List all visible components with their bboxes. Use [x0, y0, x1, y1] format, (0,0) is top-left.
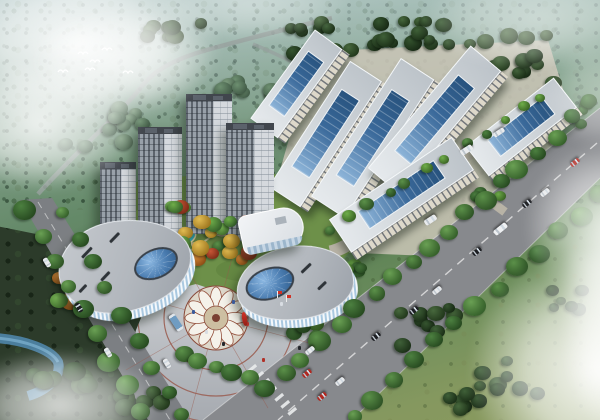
birds-overlay: [0, 0, 600, 420]
bird-icon: [85, 68, 95, 70]
bird-icon: [123, 71, 133, 73]
bird-icon: [78, 52, 88, 54]
aerial-rendering-canvas: [0, 0, 600, 420]
bird-icon: [102, 48, 112, 50]
bird-icon: [58, 70, 68, 72]
bird-icon: [90, 60, 100, 62]
